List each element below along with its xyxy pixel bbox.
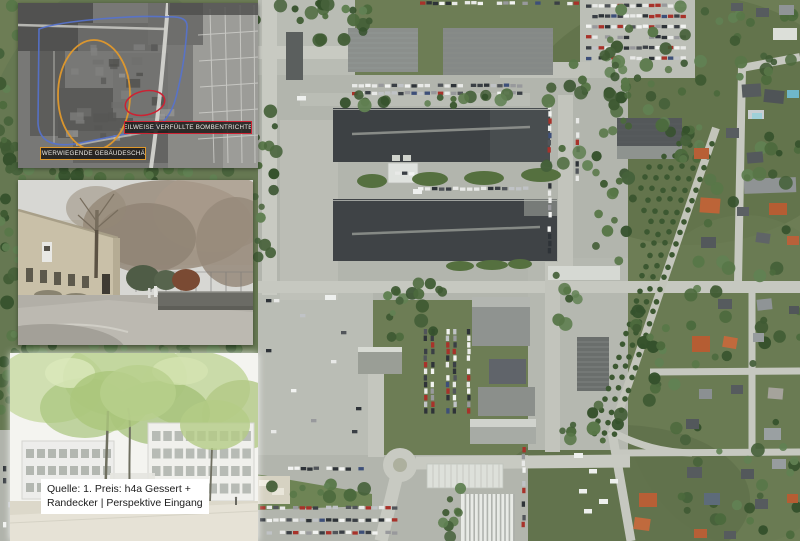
bollard	[148, 288, 151, 298]
bollard	[154, 286, 157, 297]
retaining-wall	[158, 292, 253, 310]
rendering-caption: Quelle: 1. Preis: h4a Gessert + Randecke…	[41, 479, 209, 514]
roundabout	[383, 448, 417, 482]
tree-shadow-band	[168, 3, 258, 15]
label-bomb-craters-text: TEILWEISE VERFÜLLTE BOMBENTRICHTER	[124, 124, 252, 131]
label-building-damage-text: SCHWERWIEGENDE GEBÄUDESCHÄDEN	[40, 150, 146, 157]
label-building-damage: SCHWERWIEGENDE GEBÄUDESCHÄDEN	[40, 147, 146, 160]
inset-historical-aerial-photo: TEILWEISE VERFÜLLTE BOMBENTRICHTER SCHWE…	[18, 3, 258, 168]
slide-composite: TEILWEISE VERFÜLLTE BOMBENTRICHTER SCHWE…	[0, 0, 800, 541]
inset-architecture-rendering: Quelle: 1. Preis: h4a Gessert + Randecke…	[10, 353, 258, 541]
inset-site-entrance-photo	[18, 180, 253, 345]
rendering-caption-line2: Randecker | Perspektive Eingang	[47, 496, 203, 510]
label-bomb-craters: TEILWEISE VERFÜLLTE BOMBENTRICHTER	[124, 121, 252, 134]
rendering-caption-line1: Quelle: 1. Preis: h4a Gessert +	[47, 482, 203, 496]
